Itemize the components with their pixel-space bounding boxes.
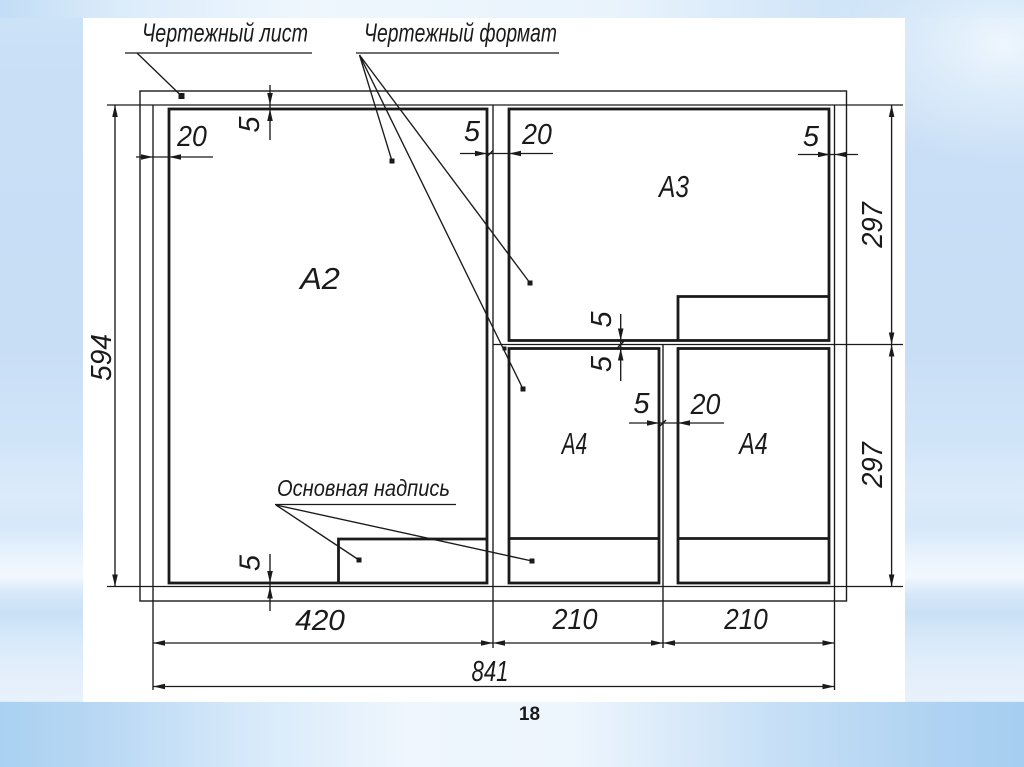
svg-text:5: 5 [586, 355, 618, 372]
svg-text:Чертежный формат: Чертежный формат [364, 18, 557, 48]
svg-text:20: 20 [176, 120, 207, 152]
svg-text:20: 20 [521, 118, 552, 150]
svg-text:Основная надпись: Основная надпись [277, 475, 450, 501]
svg-text:210: 210 [552, 603, 598, 635]
svg-text:5: 5 [586, 311, 618, 328]
svg-text:5: 5 [803, 121, 820, 153]
svg-text:297: 297 [856, 441, 888, 489]
svg-text:Чертежный лист: Чертежный лист [142, 18, 308, 48]
svg-text:А4: А4 [738, 426, 768, 461]
svg-text:5: 5 [464, 116, 481, 148]
svg-text:А3: А3 [657, 169, 689, 203]
svg-text:841: 841 [472, 656, 509, 687]
svg-text:20: 20 [690, 388, 721, 420]
svg-text:210: 210 [723, 603, 768, 636]
svg-text:18: 18 [519, 704, 540, 725]
svg-text:420: 420 [295, 604, 345, 637]
svg-text:5: 5 [633, 388, 650, 420]
svg-text:5: 5 [234, 116, 266, 133]
svg-text:А2: А2 [298, 261, 340, 296]
svg-text:5: 5 [235, 554, 267, 571]
svg-text:594: 594 [86, 334, 118, 381]
svg-text:А4: А4 [560, 426, 587, 461]
svg-text:297: 297 [856, 201, 888, 249]
